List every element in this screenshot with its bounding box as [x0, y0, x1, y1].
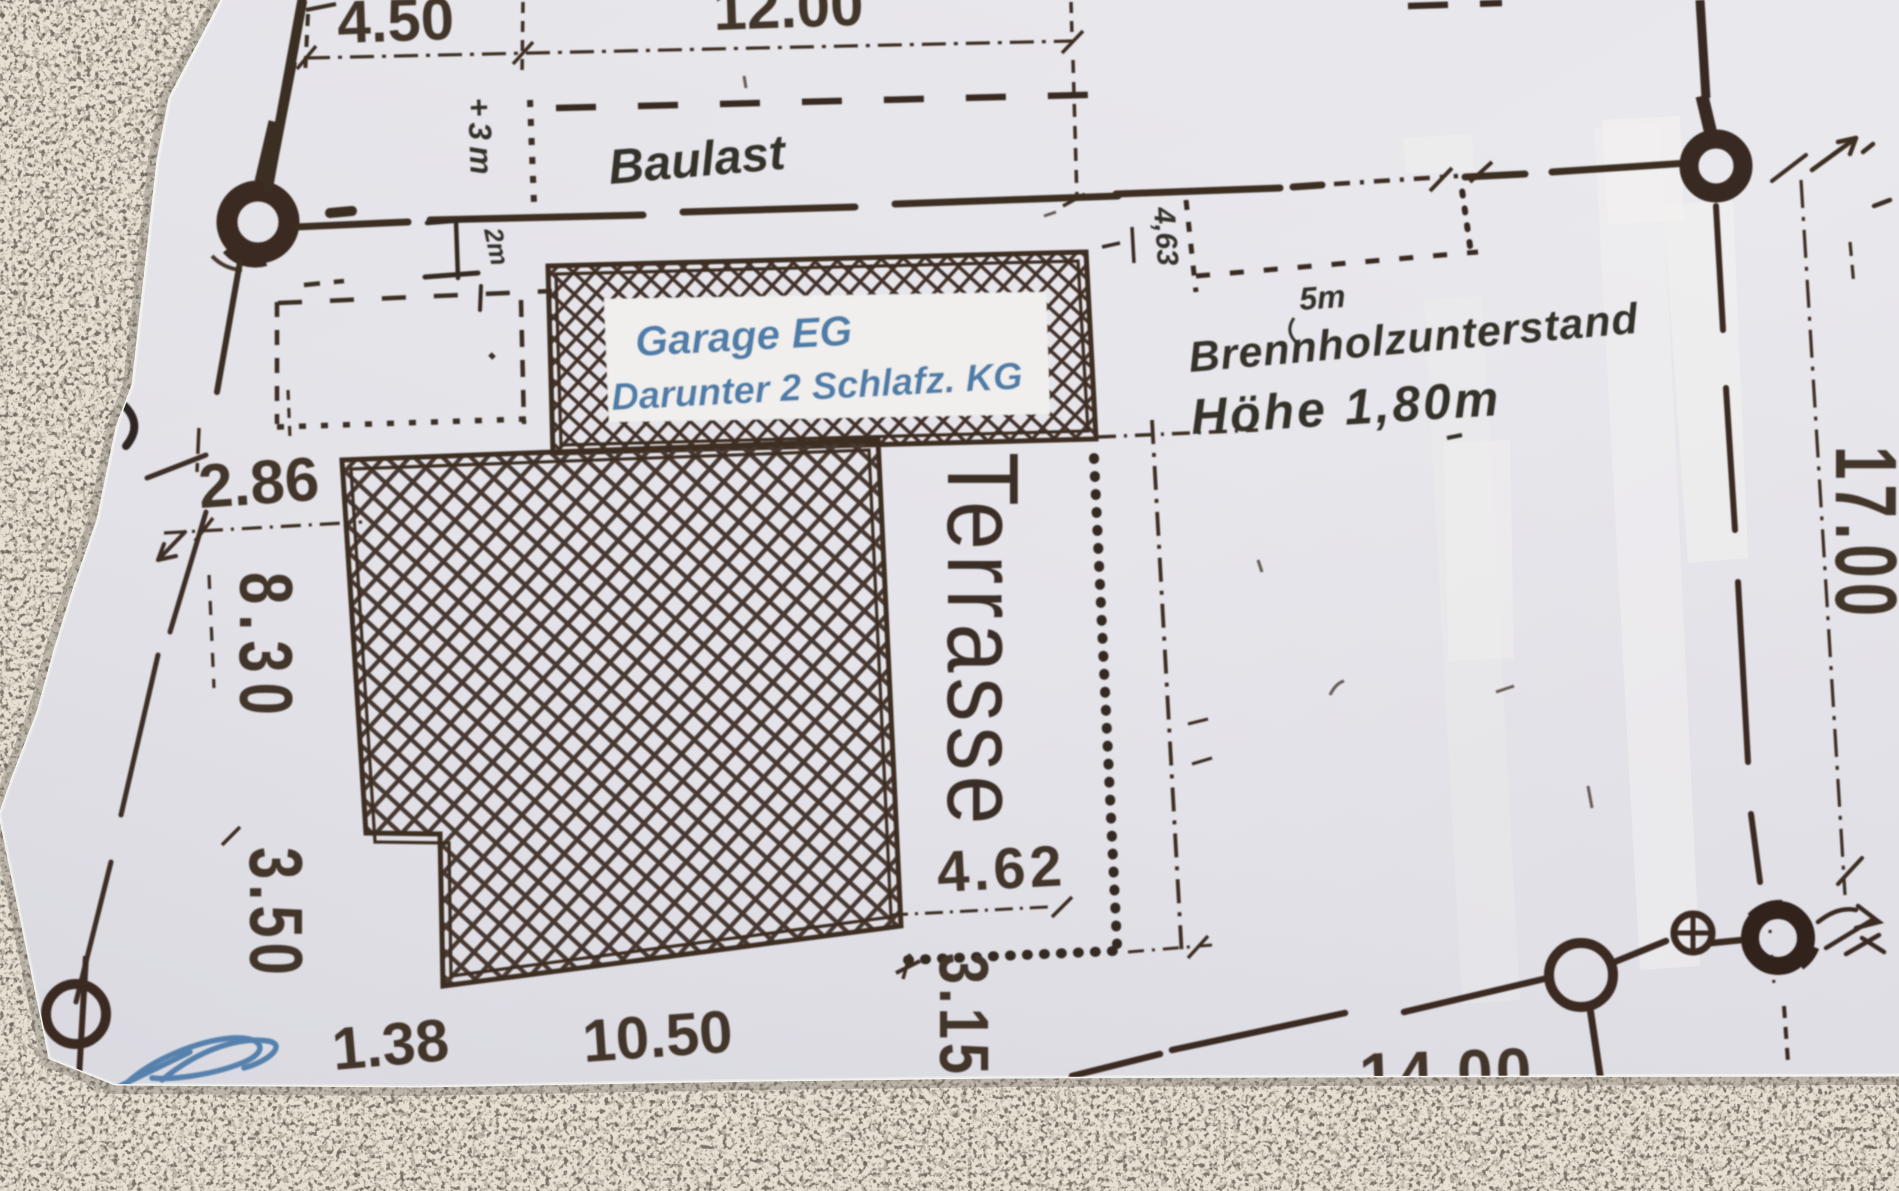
svg-text:3.50: 3.50: [233, 847, 317, 980]
svg-text:5m: 5m: [1298, 278, 1347, 317]
svg-text:4.62: 4.62: [935, 833, 1067, 905]
svg-text:4,63: 4,63: [1147, 205, 1184, 267]
svg-text:3.15: 3.15: [925, 953, 1002, 1078]
svg-text:12.00: 12.00: [712, 0, 864, 43]
svg-text:+3m: +3m: [461, 97, 500, 181]
svg-text:2.86: 2.86: [196, 445, 321, 522]
svg-text:10.50: 10.50: [580, 998, 734, 1075]
svg-text:8.30: 8.30: [223, 572, 307, 725]
svg-text:4.50: 4.50: [336, 0, 455, 56]
svg-text:Terrasse: Terrasse: [926, 452, 1039, 829]
svg-text:17.00: 17.00: [1817, 446, 1899, 621]
svg-text:1.38: 1.38: [329, 1006, 451, 1083]
